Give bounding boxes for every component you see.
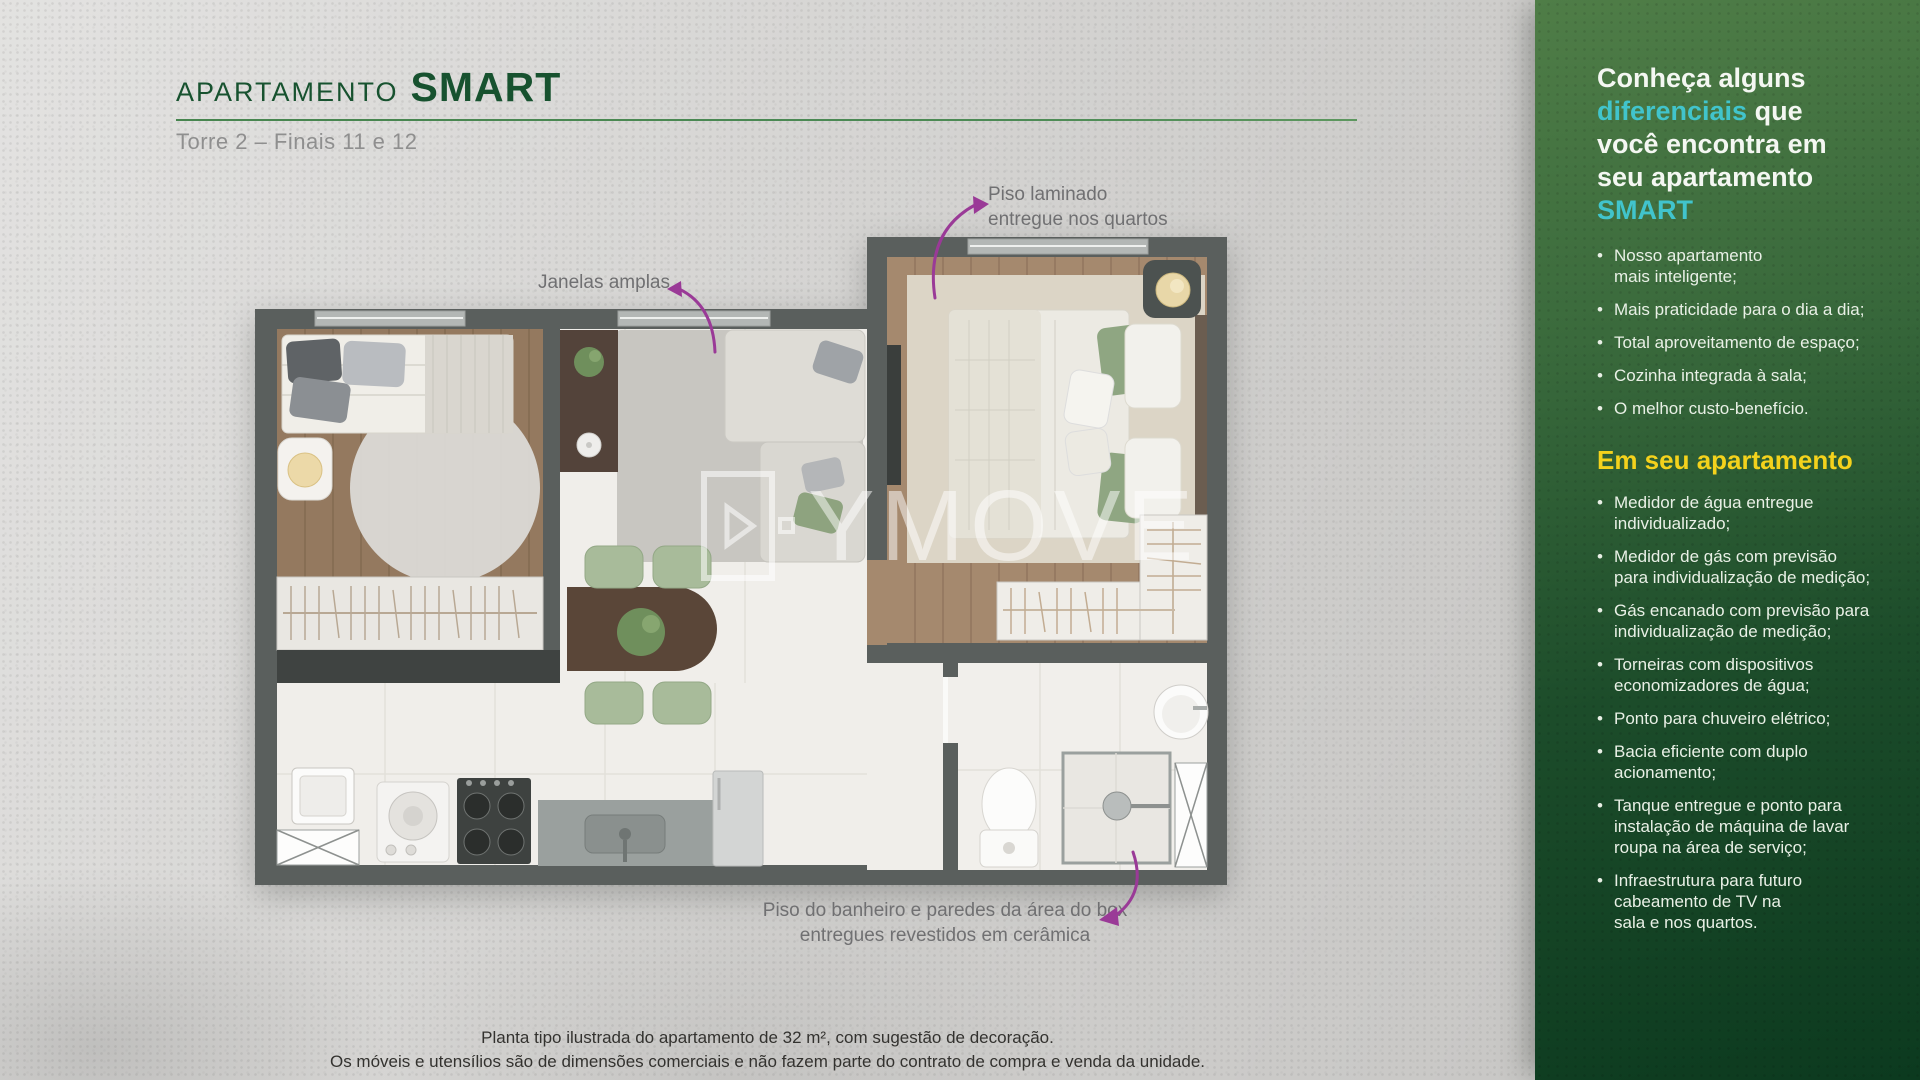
cushion xyxy=(1064,427,1112,476)
annotation-laminate: Piso laminado entregue nos quartos xyxy=(988,182,1168,232)
apartment-features-list: Medidor de água entregue individualizado… xyxy=(1597,492,1906,933)
list-item: Nosso apartamento mais inteligente; xyxy=(1597,245,1906,287)
features-panel: Conheça alguns diferenciais que você enc… xyxy=(1535,0,1920,1080)
dining-chair xyxy=(585,546,643,588)
table-plant xyxy=(617,608,665,656)
toilet-bowl xyxy=(982,768,1036,840)
sideboard-dark xyxy=(277,650,560,683)
master-door-opening xyxy=(867,560,887,645)
list-item: Ponto para chuveiro elétrico; xyxy=(1597,708,1906,729)
bed-blanket xyxy=(425,335,513,433)
tv-panel xyxy=(887,345,901,485)
brochure-page: APARTAMENTO SMART Torre 2 – Finais 11 e … xyxy=(0,0,1920,1080)
pillow-light xyxy=(342,340,406,387)
disclaimer: Planta tipo ilustrada do apartamento de … xyxy=(0,1026,1535,1074)
list-item: Medidor de gás com previsão para individ… xyxy=(1597,546,1906,588)
list-item: Gás encanado com previsão para individua… xyxy=(1597,600,1906,642)
list-item: Torneiras com dispositivos economizadore… xyxy=(1597,654,1906,696)
page-title: APARTAMENTO SMART xyxy=(176,64,1361,111)
shower-head xyxy=(1103,792,1131,820)
pillow-gray xyxy=(288,376,351,424)
cushion xyxy=(1063,369,1116,430)
disclaimer-line1: Planta tipo ilustrada do apartamento de … xyxy=(0,1026,1535,1050)
dining-chair xyxy=(653,546,711,588)
annotation-bathroom: Piso do banheiro e paredes da área do bo… xyxy=(745,898,1145,948)
floorplan xyxy=(255,230,1245,890)
title-name: SMART xyxy=(411,64,562,111)
list-item: Bacia eficiente com duplo acionamento; xyxy=(1597,741,1906,783)
title-prefix: APARTAMENTO xyxy=(176,77,399,108)
title-divider xyxy=(176,119,1357,121)
dining-chair xyxy=(653,682,711,724)
differentials-list: Nosso apartamento mais inteligente; Mais… xyxy=(1597,245,1906,419)
pillow-white xyxy=(1125,438,1181,518)
arrow-curve-icon xyxy=(665,280,725,360)
highlight-smart: SMART xyxy=(1597,194,1906,227)
list-item: O melhor custo-benefício. xyxy=(1597,398,1906,419)
list-item: Total aproveitamento de espaço; xyxy=(1597,332,1906,353)
disclaimer-line2: Os móveis e utensílios são de dimensões … xyxy=(0,1050,1535,1074)
page-header: APARTAMENTO SMART Torre 2 – Finais 11 e … xyxy=(176,64,1361,155)
list-item: Tanque entregue e ponto para instalação … xyxy=(1597,795,1906,858)
highlight-diferenciais: diferenciais xyxy=(1597,96,1747,126)
arrow-curve-icon xyxy=(1095,845,1150,935)
list-item: Cozinha integrada à sala; xyxy=(1597,365,1906,386)
floorplan-drawing xyxy=(255,230,1245,890)
list-item: Infraestrutura para futuro cabeamento de… xyxy=(1597,870,1906,933)
dining-chair xyxy=(585,682,643,724)
list-item: Mais praticidade para o dia a dia; xyxy=(1597,299,1906,320)
table-lamp xyxy=(288,453,322,487)
title-subtitle: Torre 2 – Finais 11 e 12 xyxy=(176,129,1361,155)
bathroom-door-leaf xyxy=(943,677,948,743)
plant xyxy=(574,347,604,377)
panel-intro-heading: Conheça alguns diferenciais que você enc… xyxy=(1597,62,1906,227)
arrow-curve-icon xyxy=(925,192,995,307)
pillow-white xyxy=(1125,324,1181,408)
annotation-windows: Janelas amplas xyxy=(480,270,670,295)
headboard xyxy=(1195,315,1207,540)
list-item: Medidor de água entregue individualizado… xyxy=(1597,492,1906,534)
panel-section-title: Em seu apartamento xyxy=(1597,445,1906,476)
pillow-dark xyxy=(286,338,343,384)
